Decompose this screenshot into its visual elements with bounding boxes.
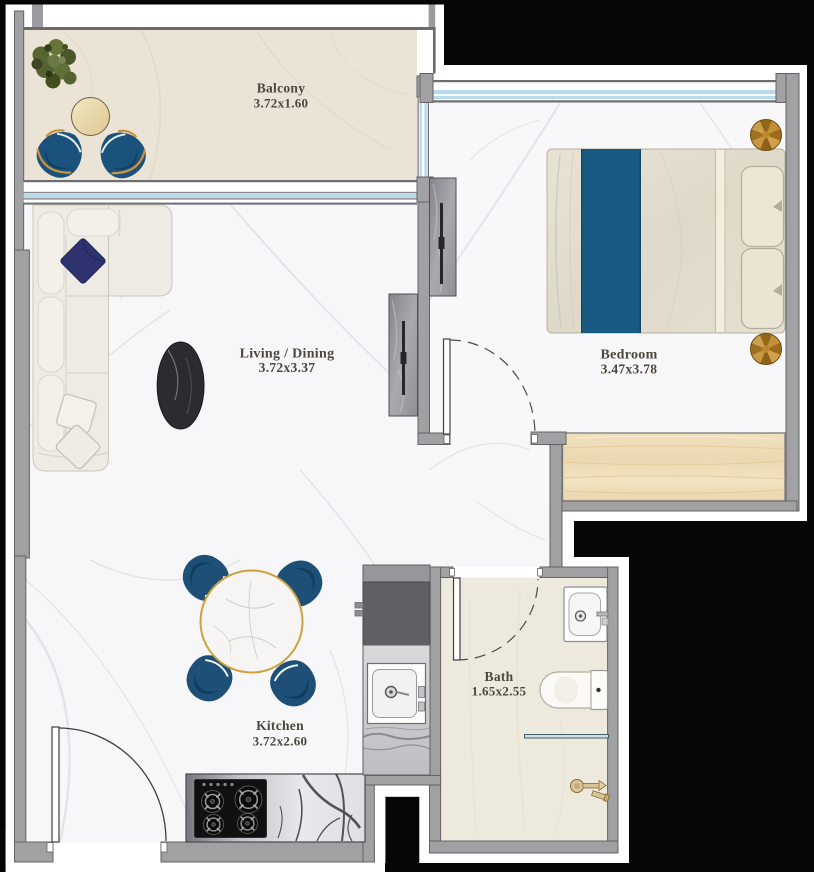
svg-text:1.65x2.55: 1.65x2.55 xyxy=(472,684,527,699)
svg-text:Kitchen: Kitchen xyxy=(256,718,304,733)
svg-text:Bedroom: Bedroom xyxy=(600,348,657,363)
svg-text:Balcony: Balcony xyxy=(257,81,306,96)
svg-text:3.47x3.78: 3.47x3.78 xyxy=(601,362,658,377)
svg-text:3.72x3.37: 3.72x3.37 xyxy=(259,360,316,375)
svg-text:Bath: Bath xyxy=(485,669,514,684)
svg-text:3.72x2.60: 3.72x2.60 xyxy=(253,734,308,749)
svg-text:3.72x1.60: 3.72x1.60 xyxy=(254,96,309,111)
